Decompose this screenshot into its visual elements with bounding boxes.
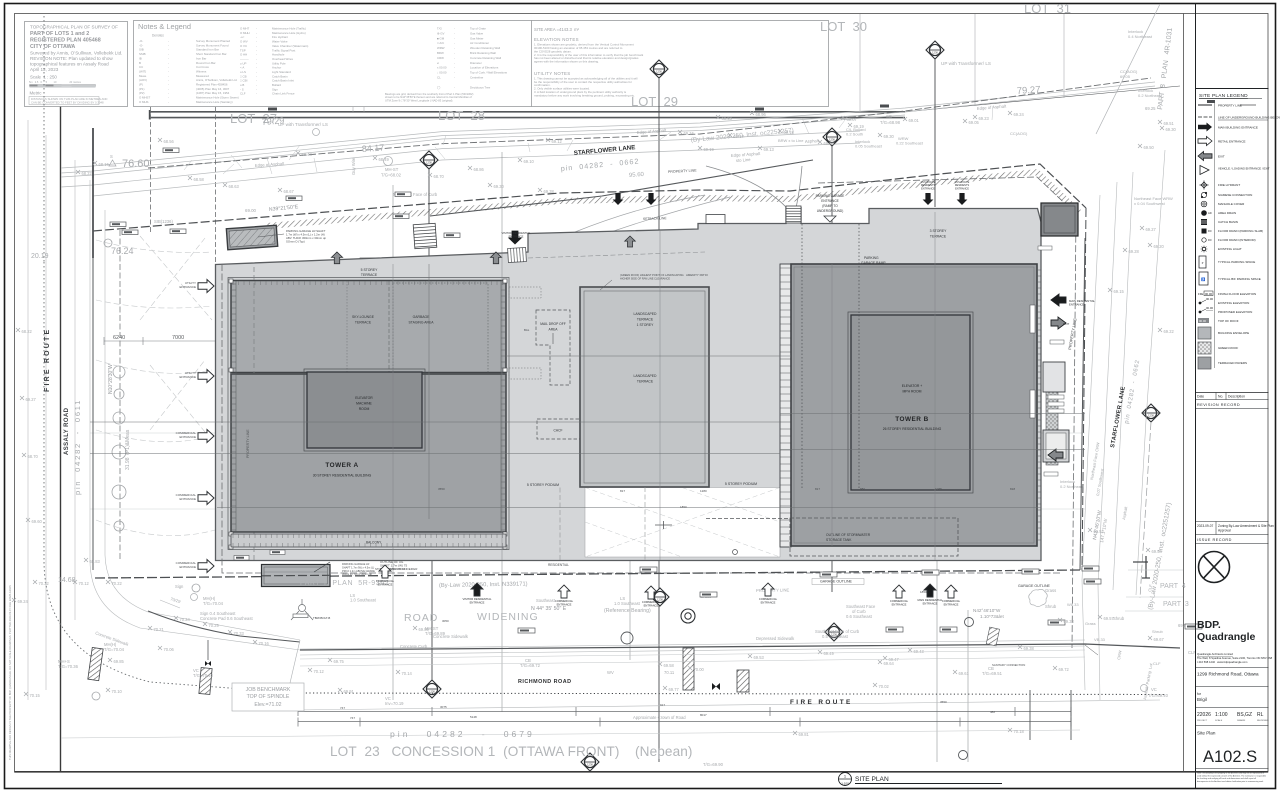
- svg-text:70.15: 70.15: [30, 693, 41, 698]
- svg-text:UP with Transformer/ LS: UP with Transformer/ LS: [278, 122, 328, 127]
- svg-text:69.49: 69.49: [824, 651, 835, 656]
- svg-text:x 00.00: x 00.00: [437, 66, 447, 70]
- svg-text:FD: FD: [1208, 229, 1212, 233]
- svg-text:ELEVATOR: ELEVATOR: [355, 396, 373, 400]
- svg-text:⌀: ⌀: [437, 61, 439, 65]
- svg-text:Concrete Curb: Concrete Curb: [400, 644, 428, 649]
- svg-text:68.96: 68.96: [756, 112, 767, 117]
- svg-text:70.10: 70.10: [112, 689, 123, 694]
- svg-text:70.33: 70.33: [234, 631, 245, 636]
- svg-text:Handhole: Handhole: [272, 53, 285, 57]
- svg-text:EXIT: EXIT: [1063, 322, 1070, 326]
- svg-text:FINISH FLOOR ELEVATION: FINISH FLOOR ELEVATION: [1218, 292, 1256, 296]
- svg-text:BDP.: BDP.: [1197, 619, 1221, 631]
- svg-text:TOP OF ROOF: TOP OF ROOF: [1218, 319, 1239, 323]
- svg-text:1280: 1280: [700, 489, 707, 493]
- svg-text:GARAGE RAMP: GARAGE RAMP: [861, 261, 886, 265]
- svg-text:Top of Grate: Top of Grate: [470, 27, 486, 31]
- svg-text:Concrete Retaining Wall: Concrete Retaining Wall: [470, 56, 501, 60]
- svg-text:69.05: 69.05: [1120, 74, 1131, 79]
- svg-text:Concrete Pad 0.6 Southeast: Concrete Pad 0.6 Southeast: [200, 616, 253, 621]
- svg-text:TOP OF SPINDLE: TOP OF SPINDLE: [247, 694, 290, 700]
- svg-text:69.53: 69.53: [754, 655, 765, 660]
- svg-text:Valve Chamber (Watermain): Valve Chamber (Watermain): [272, 44, 308, 48]
- svg-text:ROAD: ROAD: [404, 612, 438, 624]
- svg-text:0.2 Northeast: 0.2 Northeast: [1138, 93, 1163, 98]
- svg-text:Guy Wire: Guy Wire: [351, 157, 356, 175]
- svg-text:95.60: 95.60: [629, 172, 645, 179]
- svg-text:UTM Zone 9 ( 76°30' West Longi: UTM Zone 9 ( 76°30' West Longitude ) NAD…: [385, 98, 453, 102]
- svg-text:8017: 8017: [700, 713, 707, 717]
- svg-text:used without the expressed con: used without the expressed consent of th…: [1197, 774, 1266, 777]
- svg-text:69.25: 69.25: [1145, 106, 1156, 111]
- svg-text:Approximate Crown of Road: Approximate Crown of Road: [633, 715, 686, 720]
- svg-text:SITE AREA =4143.3 m²: SITE AREA =4143.3 m²: [534, 27, 580, 32]
- svg-text:STAGING AREA: STAGING AREA: [409, 321, 435, 325]
- svg-text:PROPERTY LINE: PROPERTY LINE: [1218, 104, 1242, 108]
- svg-text:3550: 3550: [940, 700, 947, 704]
- svg-text:MAIN RESIDENTIAL: MAIN RESIDENTIAL: [917, 598, 943, 602]
- svg-text:SETBACK LINE: SETBACK LINE: [643, 216, 668, 221]
- svg-text:68.58: 68.58: [194, 177, 205, 182]
- svg-text:O MHT: O MHT: [240, 27, 250, 31]
- svg-text:CRW: CRW: [437, 56, 444, 60]
- svg-text:T/G=68.02: T/G=68.02: [381, 173, 402, 178]
- svg-text:(4005) Plan May 16, 3007: (4005) Plan May 16, 3007: [196, 87, 230, 91]
- svg-text:ENTRANCE: ENTRANCE: [644, 604, 659, 608]
- svg-text:69.52: 69.52: [1094, 529, 1105, 534]
- svg-text:LOT 28: LOT 28: [438, 108, 485, 123]
- svg-text:69.51: 69.51: [1164, 121, 1175, 126]
- svg-text:Inv=70.19: Inv=70.19: [385, 701, 404, 706]
- svg-text:TYPICAL PARKING SPACE: TYPICAL PARKING SPACE: [1218, 260, 1255, 264]
- svg-text:LINE OF UNDERGROUND BUILDING B: LINE OF UNDERGROUND BUILDING BELOW: [1218, 116, 1280, 120]
- svg-text:482: 482: [990, 710, 995, 714]
- svg-text:-: -: [454, 51, 455, 55]
- svg-text:OUTLINE OF STORMWATER: OUTLINE OF STORMWATER: [826, 533, 871, 537]
- svg-text:-: -: [454, 76, 455, 80]
- svg-text:1236: 1236: [932, 50, 938, 54]
- svg-text:69.27: 69.27: [26, 397, 37, 402]
- svg-text:LOT 30: LOT 30: [820, 19, 867, 34]
- svg-text:mandatory before any work invo: mandatory before any work involving brea…: [534, 93, 635, 97]
- svg-text:5 STOREY: 5 STOREY: [361, 268, 378, 272]
- svg-text:SITE PLAN LEGEND: SITE PLAN LEGEND: [1199, 93, 1248, 99]
- svg-text:SITE PLAN: SITE PLAN: [855, 776, 889, 783]
- svg-text:69.91: 69.91: [344, 689, 355, 694]
- svg-text:-: -: [168, 87, 169, 91]
- svg-text:BUILDING ENVELOPE: BUILDING ENVELOPE: [1218, 331, 1249, 335]
- svg-text:Gas Valve: Gas Valve: [470, 31, 484, 35]
- svg-text:69.13: 69.13: [764, 147, 775, 152]
- svg-text:(AOV): (AOV): [139, 78, 147, 82]
- svg-text:Fire Hydrant: Fire Hydrant: [272, 35, 288, 39]
- svg-text:MAIN BUILDING ENTRANCE: MAIN BUILDING ENTRANCE: [1218, 126, 1258, 130]
- svg-text:VISITOR RESIDENTIAL: VISITOR RESIDENTIAL: [462, 597, 492, 601]
- svg-text:for checking and verifying all: for checking and verifying all levels an…: [1197, 777, 1257, 780]
- svg-text:-: -: [256, 53, 257, 57]
- svg-text:T/G: T/G: [437, 27, 443, 31]
- svg-text:-: -: [256, 35, 257, 39]
- svg-text:FIRE ROUTE: FIRE ROUTE: [790, 699, 853, 706]
- svg-text:O VC: O VC: [240, 44, 247, 48]
- svg-text:Approval: Approval: [1218, 529, 1231, 533]
- svg-text:Bollard: Bollard: [272, 83, 281, 87]
- svg-text:76.60: 76.60: [122, 158, 150, 170]
- svg-text:68.48: 68.48: [302, 152, 313, 157]
- svg-text:ENTRANCE: ENTRANCE: [761, 601, 776, 605]
- svg-text:UTILITY NOTES: UTILITY NOTES: [534, 71, 571, 76]
- svg-text:68.67: 68.67: [284, 189, 295, 194]
- svg-text:ENTRANCE: ENTRANCE: [378, 583, 393, 587]
- svg-text:Denotes: Denotes: [152, 34, 164, 38]
- svg-text:Asphalt: Asphalt: [805, 138, 820, 144]
- svg-text:68.56: 68.56: [164, 139, 175, 144]
- svg-text:Date: Date: [1197, 395, 1204, 399]
- svg-text:VC: VC: [1151, 687, 1157, 692]
- svg-text:BRW: BRW: [437, 51, 444, 55]
- svg-text:ENTRANCE: ENTRANCE: [923, 602, 938, 606]
- svg-text:T/G=70.04: T/G=70.04: [203, 601, 224, 606]
- svg-text:917: 917: [660, 703, 665, 707]
- svg-text:o UP: o UP: [240, 61, 246, 65]
- svg-text:REGISTERED PLAN 405468: REGISTERED PLAN 405468: [30, 38, 101, 44]
- svg-text:70.29: 70.29: [209, 623, 220, 628]
- svg-text:Maintenance Hole (Traffic): Maintenance Hole (Traffic): [272, 27, 306, 31]
- svg-text:ENTRANCE: ENTRANCE: [821, 199, 839, 203]
- svg-text:-: -: [454, 85, 455, 89]
- svg-text:69.19: 69.19: [854, 124, 865, 129]
- svg-text:22026: 22026: [1197, 712, 1211, 718]
- svg-text:0.05 Southeast: 0.05 Southeast: [855, 144, 883, 149]
- svg-text:A102.S: A102.S: [1203, 748, 1257, 766]
- svg-text:0.6 Southeast: 0.6 Southeast: [846, 614, 873, 619]
- svg-text:Standard Iron Bar: Standard Iron Bar: [196, 48, 219, 52]
- svg-text:69.19: 69.19: [704, 147, 715, 152]
- svg-text:SIB(1236): SIB(1236): [154, 219, 173, 224]
- svg-text:Centreline: Centreline: [470, 76, 484, 80]
- svg-text:SKY-LOUNGE: SKY-LOUNGE: [352, 315, 375, 319]
- svg-text:69.58: 69.58: [664, 663, 675, 668]
- svg-text:CL: CL: [437, 76, 441, 80]
- svg-text:(Reference Bearing): (Reference Bearing): [604, 608, 651, 614]
- svg-text:69.72: 69.72: [1059, 667, 1070, 672]
- svg-text:0.4 Northeast: 0.4 Northeast: [1128, 34, 1153, 39]
- svg-text:5m 2.5 0 5 10: 5m 2.5 0 5 10 20 metres: [29, 80, 82, 84]
- svg-text:ENTRANCE: ENTRANCE: [921, 187, 935, 190]
- svg-text:AD: AD: [1208, 211, 1212, 215]
- svg-text:GARAGE OUTLINE: GARAGE OUTLINE: [1018, 584, 1051, 588]
- svg-text:70.32: 70.32: [39, 581, 50, 586]
- svg-text:THIS DRAWING AND DESIGN IS THE: THIS DRAWING AND DESIGN IS THE PROPERTY …: [8, 585, 12, 760]
- svg-text:W8.33: W8.33: [1067, 602, 1079, 607]
- svg-text:Iron Bar: Iron Bar: [196, 56, 206, 60]
- svg-text:-: -: [168, 48, 169, 52]
- svg-text:69.43: 69.43: [914, 649, 925, 654]
- svg-text:69.30: 69.30: [494, 184, 505, 189]
- svg-text:68.93: 68.93: [722, 116, 733, 121]
- svg-text:PARKING GARAGE: PARKING GARAGE: [816, 194, 845, 198]
- svg-text:REVISION RECORD: REVISION RECORD: [1197, 403, 1240, 407]
- svg-text:T/G=69.90: T/G=69.90: [703, 762, 724, 767]
- svg-text:LOT 29: LOT 29: [631, 94, 678, 109]
- svg-text:ENTRANCE: ENTRANCE: [1069, 303, 1085, 307]
- svg-text:VEHICLE / LOADING ENTRANCE / E: VEHICLE / LOADING ENTRANCE / EXIT: [1218, 167, 1270, 171]
- svg-text:ISSUE RECORD: ISSUE RECORD: [1197, 538, 1232, 542]
- svg-text:69.38: 69.38: [1024, 646, 1035, 651]
- svg-text:ENTRANCE: ENTRANCE: [179, 285, 196, 289]
- svg-text:-: -: [454, 66, 455, 70]
- svg-text:DRAWN: DRAWN: [1237, 719, 1246, 722]
- svg-text:00.00: 00.00: [1206, 306, 1213, 310]
- svg-text:-O-: -O-: [139, 39, 143, 43]
- svg-text:69.24: 69.24: [18, 599, 29, 604]
- svg-text:ENTRANCE: ENTRANCE: [179, 565, 196, 569]
- svg-text:69.47: 69.47: [889, 657, 900, 662]
- svg-text:3075: 3075: [440, 705, 447, 709]
- svg-text:68.22: 68.22: [82, 171, 93, 176]
- svg-text:PROJ 1.2m ABOVE GRADE: PROJ 1.2m ABOVE GRADE: [342, 569, 375, 573]
- svg-text:discrepancies to the Architect: discrepancies to the Architect and obtai…: [1197, 780, 1264, 783]
- svg-text:Diameter: Diameter: [470, 61, 482, 65]
- svg-text:00.00: 00.00: [1205, 292, 1212, 296]
- svg-text:Sign: Sign: [175, 584, 184, 589]
- svg-text:O HH: O HH: [240, 53, 247, 57]
- svg-text:ROOM: ROOM: [359, 407, 370, 411]
- svg-text:-: -: [168, 65, 169, 69]
- svg-text:-: -: [454, 46, 455, 50]
- svg-text:PART OF LOTS 1 and 2: PART OF LOTS 1 and 2: [30, 31, 89, 37]
- svg-text:□ CB: □ CB: [240, 74, 247, 78]
- svg-text:FIRE ROUTE: FIRE ROUTE: [44, 328, 51, 392]
- svg-text:LANDSCAPED: LANDSCAPED: [634, 312, 658, 316]
- svg-text:GARBAGE: GARBAGE: [413, 315, 431, 319]
- svg-text:SCALE: SCALE: [1215, 719, 1223, 722]
- svg-text:1:100: 1:100: [841, 782, 849, 786]
- svg-text:-: -: [454, 36, 455, 40]
- svg-text:No.: No.: [1218, 395, 1223, 399]
- svg-text:TOWER B: TOWER B: [895, 416, 929, 423]
- svg-text:O MHST: O MHST: [139, 96, 150, 100]
- svg-text:69.08: 69.08: [824, 141, 835, 146]
- svg-text:68.70: 68.70: [434, 174, 445, 179]
- svg-text:Shrub: Shrub: [1045, 604, 1057, 609]
- svg-text:LOT 23 CONCESSION 1 (OTTAW: LOT 23 CONCESSION 1 (OTTAWA FRONT) (Nepe…: [330, 744, 693, 759]
- svg-text:1.10*73&let: 1.10*73&let: [980, 614, 1004, 619]
- svg-text:VB.33: VB.33: [1094, 637, 1106, 642]
- svg-text:68.63: 68.63: [229, 184, 240, 189]
- svg-text:AMENITY PATIO: AMENITY PATIO: [686, 273, 709, 277]
- svg-text:ENTRANCE: ENTRANCE: [892, 603, 907, 607]
- svg-text:Southeast: Southeast: [536, 598, 556, 603]
- svg-text:REVISION NOTE: Plan updated to: REVISION NOTE: Plan updated to show: [30, 56, 113, 61]
- svg-text:COMMERCIAL: COMMERCIAL: [890, 599, 909, 603]
- svg-text:69.30: 69.30: [1166, 127, 1177, 132]
- svg-text:-: -: [256, 61, 257, 65]
- svg-text:Quadrangle Architects Limited: Quadrangle Architects Limited: [1197, 652, 1233, 656]
- svg-text:-: -: [168, 39, 169, 43]
- svg-text:Grass: Grass: [1045, 588, 1056, 593]
- svg-text:MANHOLE COVER: MANHOLE COVER: [1218, 202, 1245, 206]
- svg-text:ENTRANCE: ENTRANCE: [955, 187, 969, 190]
- svg-text:HIGHER SIDE OF R/W LINE CLEARA: HIGHER SIDE OF R/W LINE CLEARANCE: [620, 277, 670, 281]
- svg-text:69.15: 69.15: [1114, 289, 1125, 294]
- svg-text:RL: RL: [1257, 712, 1264, 718]
- svg-text:Cut Cross: Cut Cross: [196, 65, 209, 69]
- svg-text:70.12: 70.12: [314, 669, 325, 674]
- svg-text:69.20: 69.20: [1154, 244, 1165, 249]
- svg-text:TERRACE: TERRACE: [637, 318, 654, 322]
- svg-text:Maintenance Hole (Sanitary): Maintenance Hole (Sanitary): [196, 100, 233, 104]
- svg-text:Shrub: Shrub: [1113, 616, 1125, 621]
- svg-text:RICHMOND ROAD: RICHMOND ROAD: [518, 679, 572, 685]
- svg-text:WV: WV: [607, 670, 614, 675]
- svg-text:EXISTING LIGHT: EXISTING LIGHT: [1218, 247, 1242, 251]
- svg-text:70.16: 70.16: [259, 641, 270, 646]
- svg-text:ENTRANCE: ENTRANCE: [179, 375, 196, 379]
- svg-text:TERRACE: TERRACE: [361, 273, 378, 277]
- svg-text:-: -: [168, 100, 169, 104]
- svg-text:O MHS: O MHS: [139, 100, 149, 104]
- svg-text:30 STOREY RESIDENTIAL BUILDING: 30 STOREY RESIDENTIAL BUILDING: [313, 474, 372, 478]
- svg-text:79.27: 79.27: [1016, 84, 1040, 97]
- svg-text:68.22: 68.22: [22, 329, 33, 334]
- svg-text:AREA DRAIN: AREA DRAIN: [1218, 211, 1236, 215]
- svg-text:Shrub: Shrub: [1152, 629, 1163, 634]
- svg-text:TOWER A: TOWER A: [325, 462, 358, 469]
- svg-text:T/G=69.40: T/G=69.40: [1148, 693, 1169, 698]
- svg-text:SANITARY CONNECTION: SANITARY CONNECTION: [992, 663, 1025, 667]
- svg-text:-: -: [454, 31, 455, 35]
- svg-text:5 STOREY PODIUM: 5 STOREY PODIUM: [725, 482, 757, 486]
- svg-text:PARKING GARAGE LR: PARKING GARAGE LR: [342, 562, 369, 566]
- svg-text:COMMERCIAL: COMMERCIAL: [642, 600, 661, 604]
- svg-text:69.30: 69.30: [884, 134, 895, 139]
- svg-text:-: -: [454, 27, 455, 31]
- svg-text:FFE: FFE: [1198, 292, 1203, 296]
- svg-text:69.85: 69.85: [114, 659, 125, 664]
- svg-text:ASSALY ROAD: ASSALY ROAD: [64, 407, 70, 455]
- svg-text:T/G=69.72: T/G=69.72: [520, 663, 541, 668]
- svg-text:7000: 7000: [172, 335, 184, 341]
- svg-text:topographical features on Assa: topographical features on Assaly Road: [30, 62, 109, 67]
- svg-text:CACF: CACF: [554, 429, 563, 433]
- svg-text:69.22: 69.22: [1164, 329, 1175, 334]
- svg-text:pin 04282 - 0611: pin 04282 - 0611: [73, 399, 82, 495]
- svg-text:ENTRANCE: ENTRANCE: [944, 603, 959, 607]
- svg-text:70.11: 70.11: [664, 670, 675, 675]
- svg-text:COMMERCIAL: COMMERCIAL: [759, 597, 778, 601]
- svg-text:70.24: 70.24: [180, 617, 191, 622]
- svg-text:747: 747: [350, 716, 355, 720]
- svg-text:Depressed Sidewalk: Depressed Sidewalk: [756, 636, 795, 641]
- svg-text:T/G=68.98: T/G=68.98: [880, 120, 901, 125]
- svg-text:69.24: 69.24: [1014, 112, 1025, 117]
- svg-text:PARKING: PARKING: [864, 256, 879, 260]
- svg-text:69.57: 69.57: [1104, 616, 1115, 621]
- svg-text:Site Plan: Site Plan: [1197, 731, 1216, 736]
- svg-text:Deciduous Tree: Deciduous Tree: [470, 85, 491, 89]
- svg-text:⊕ GV: ⊕ GV: [437, 31, 444, 35]
- svg-text:T/G=69.51: T/G=69.51: [982, 671, 1003, 676]
- svg-text:FLOOR DRAIN (PARKING SLAB): FLOOR DRAIN (PARKING SLAB): [1218, 229, 1263, 233]
- svg-text:CC: CC: [139, 65, 143, 69]
- svg-text:ENTRANCE: ENTRANCE: [509, 235, 524, 239]
- svg-text:Air Conditioner: Air Conditioner: [470, 41, 489, 45]
- svg-text:70.00: 70.00: [694, 667, 705, 672]
- svg-text:BS,GZ: BS,GZ: [1237, 712, 1252, 718]
- svg-text:-: -: [168, 96, 169, 100]
- svg-text:Survey Monument Planted: Survey Monument Planted: [196, 39, 230, 43]
- svg-text:PROJECT: PROJECT: [1197, 720, 1208, 722]
- svg-text:69.27: 69.27: [1146, 227, 1157, 232]
- svg-text:N10°28'30"W: N10°28'30"W: [108, 364, 114, 394]
- svg-text:70.14: 70.14: [402, 671, 413, 676]
- svg-text:COMMERCIAL: COMMERCIAL: [555, 599, 574, 603]
- svg-text:69.23: 69.23: [979, 116, 990, 121]
- svg-text:Chain Link Fence: Chain Link Fence: [272, 92, 295, 96]
- svg-text:26 STOREY RESIDENTIAL BUILDING: 26 STOREY RESIDENTIAL BUILDING: [883, 427, 942, 431]
- svg-text:(RAMP TO: (RAMP TO: [822, 204, 838, 208]
- svg-text:TERRACE: TERRACE: [355, 321, 372, 325]
- svg-text:69.33: 69.33: [1064, 619, 1075, 624]
- svg-text:76.24: 76.24: [111, 246, 134, 256]
- svg-text:EXISTING ELEVATION: EXISTING ELEVATION: [1218, 301, 1249, 305]
- svg-text:5 STOREY PODIUM: 5 STOREY PODIUM: [527, 483, 559, 487]
- svg-text:70.12: 70.12: [79, 581, 90, 586]
- svg-text:-: -: [256, 74, 257, 78]
- svg-text:■ GM: ■ GM: [437, 36, 445, 40]
- svg-text:70.22: 70.22: [112, 581, 123, 586]
- svg-text:Top of Curb / Wall Elevations: Top of Curb / Wall Elevations: [470, 71, 508, 75]
- svg-text:1236: 1236: [426, 160, 432, 164]
- svg-text:-: -: [454, 56, 455, 60]
- svg-text:SOmm D (Typ): SOmm D (Typ): [286, 240, 305, 244]
- svg-text:00.00: 00.00: [1199, 319, 1206, 323]
- svg-text:CLF: CLF: [1153, 661, 1161, 666]
- svg-text:Brigil: Brigil: [1197, 697, 1207, 702]
- svg-text:-: -: [454, 71, 455, 75]
- svg-text:69.89: 69.89: [419, 627, 430, 632]
- svg-text:0.2 South: 0.2 South: [846, 132, 863, 137]
- svg-text:69.17: 69.17: [734, 134, 745, 139]
- svg-text:TBM=BOLT-B: TBM=BOLT-B: [313, 616, 330, 620]
- svg-text:LOT 31: LOT 31: [1024, 1, 1071, 16]
- svg-text:817: 817: [815, 487, 820, 491]
- svg-text:818: 818: [1010, 487, 1015, 491]
- svg-text:5148: 5148: [470, 715, 477, 719]
- svg-text:GARAGE OUTLINE: GARAGE OUTLINE: [820, 580, 853, 584]
- svg-text:SIB: SIB: [139, 48, 144, 52]
- svg-text:68.83: 68.83: [90, 559, 101, 564]
- svg-text:69.00: 69.00: [245, 208, 257, 213]
- svg-text:TYPICAL B/F PARKING SPACE: TYPICAL B/F PARKING SPACE: [1218, 277, 1261, 281]
- svg-text:CC(AOG): CC(AOG): [1010, 131, 1028, 136]
- svg-text:1.0 Southeast: 1.0 Southeast: [614, 601, 641, 606]
- svg-text:84.17: 84.17: [361, 142, 384, 154]
- svg-text:REVIEWED: REVIEWED: [1257, 720, 1269, 722]
- svg-text:20.19: 20.19: [31, 253, 49, 260]
- svg-text:Elev.=71.02: Elev.=71.02: [254, 702, 281, 708]
- svg-text:COMMERCIAL: COMMERCIAL: [376, 579, 395, 583]
- svg-text:69.18: 69.18: [784, 130, 795, 135]
- svg-text:Location of Elevations: Location of Elevations: [470, 66, 499, 70]
- svg-text:MAIL DROP OFF: MAIL DROP OFF: [540, 322, 565, 326]
- svg-text:COMMERCIAL: COMMERCIAL: [942, 599, 961, 603]
- svg-text:ENTRANCE: ENTRANCE: [470, 601, 485, 605]
- svg-text:79.29: 79.29: [261, 115, 284, 127]
- svg-text:1.0 Southeast: 1.0 Southeast: [350, 598, 377, 603]
